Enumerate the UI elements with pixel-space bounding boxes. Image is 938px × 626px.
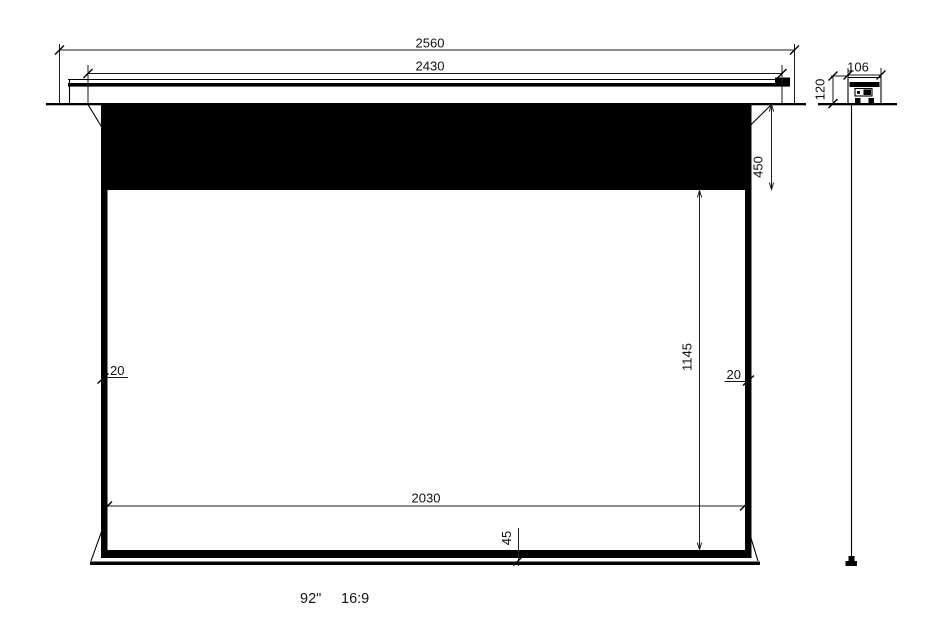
dimension-inner-width: 2430	[84, 59, 787, 104]
case-foot-right	[869, 98, 875, 103]
side-ceiling-line	[818, 103, 897, 105]
dimension-label-left-border: 20	[110, 363, 124, 378]
dimension-case-height: 120	[813, 72, 850, 109]
motor-symbol-dot	[857, 91, 860, 94]
dimension-label-case-width: 106	[847, 60, 869, 75]
screen-bottom-bar	[101, 550, 752, 558]
weight-base	[846, 561, 858, 566]
caption-aspect-ratio: 16:9	[341, 591, 369, 607]
bottom-slat	[90, 562, 760, 566]
dimension-top-border-height: 450	[751, 105, 774, 190]
weight-top	[849, 556, 855, 562]
dimension-label-case-height: 120	[813, 79, 828, 101]
side-view-case	[818, 78, 897, 567]
case-inner-bar	[850, 82, 880, 87]
case-foot-left	[855, 98, 861, 103]
dimension-label-bottom-bar-height: 45	[499, 531, 514, 545]
caption-screen-size: 92"	[300, 591, 321, 607]
caption: 92" 16:9	[300, 591, 369, 607]
dimension-label-inner-width: 2430	[416, 59, 445, 74]
screen-right-border	[745, 190, 752, 550]
motor-symbol-fill	[864, 90, 872, 96]
dimension-label-viewing-height: 1145	[680, 343, 695, 371]
dimension-case-width: 106	[844, 60, 886, 80]
dimension-label-viewing-width: 2030	[412, 491, 441, 506]
drawing-canvas: 2560 2430 450 1145 20 20 2	[0, 0, 938, 626]
screen-left-border	[101, 190, 108, 550]
dimension-label-overall-width: 2560	[416, 36, 445, 51]
casing-body-bar	[68, 83, 790, 87]
dimension-label-top-border-height: 450	[751, 156, 766, 178]
front-view-casing	[46, 78, 806, 106]
screen-top-mask	[101, 104, 752, 191]
dimension-label-right-border: 20	[727, 367, 741, 382]
technical-drawing: 2560 2430 450 1145 20 20 2	[0, 0, 938, 626]
